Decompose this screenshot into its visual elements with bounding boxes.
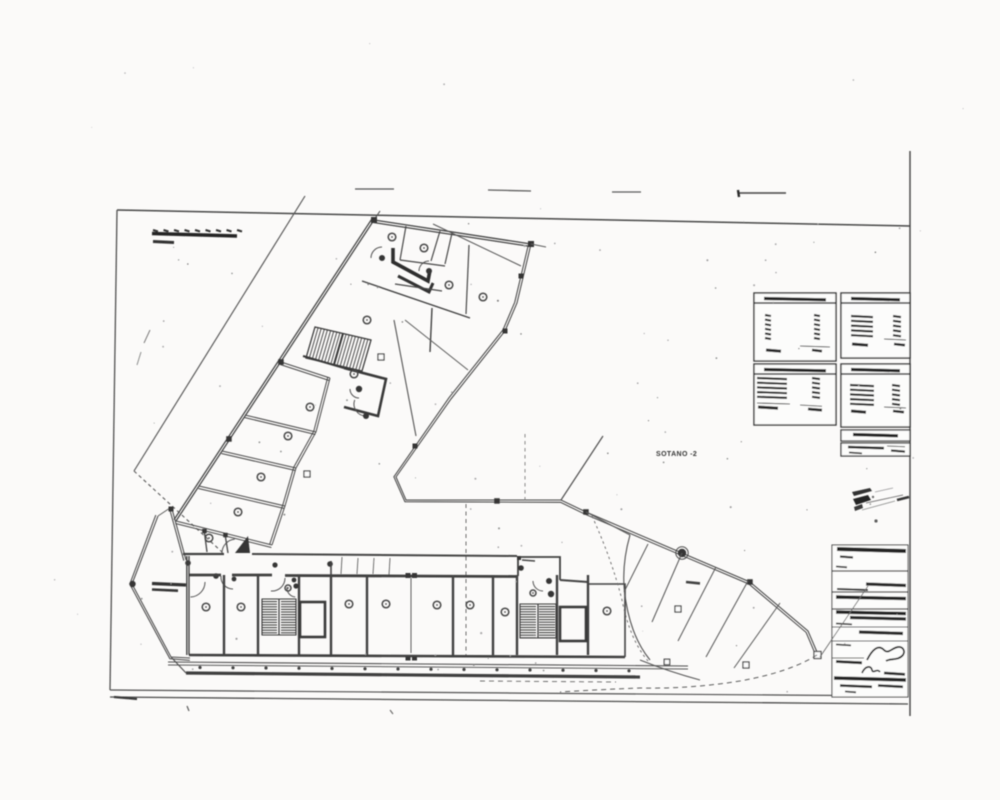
svg-text:SOTANO -2: SOTANO -2 — [656, 451, 697, 458]
